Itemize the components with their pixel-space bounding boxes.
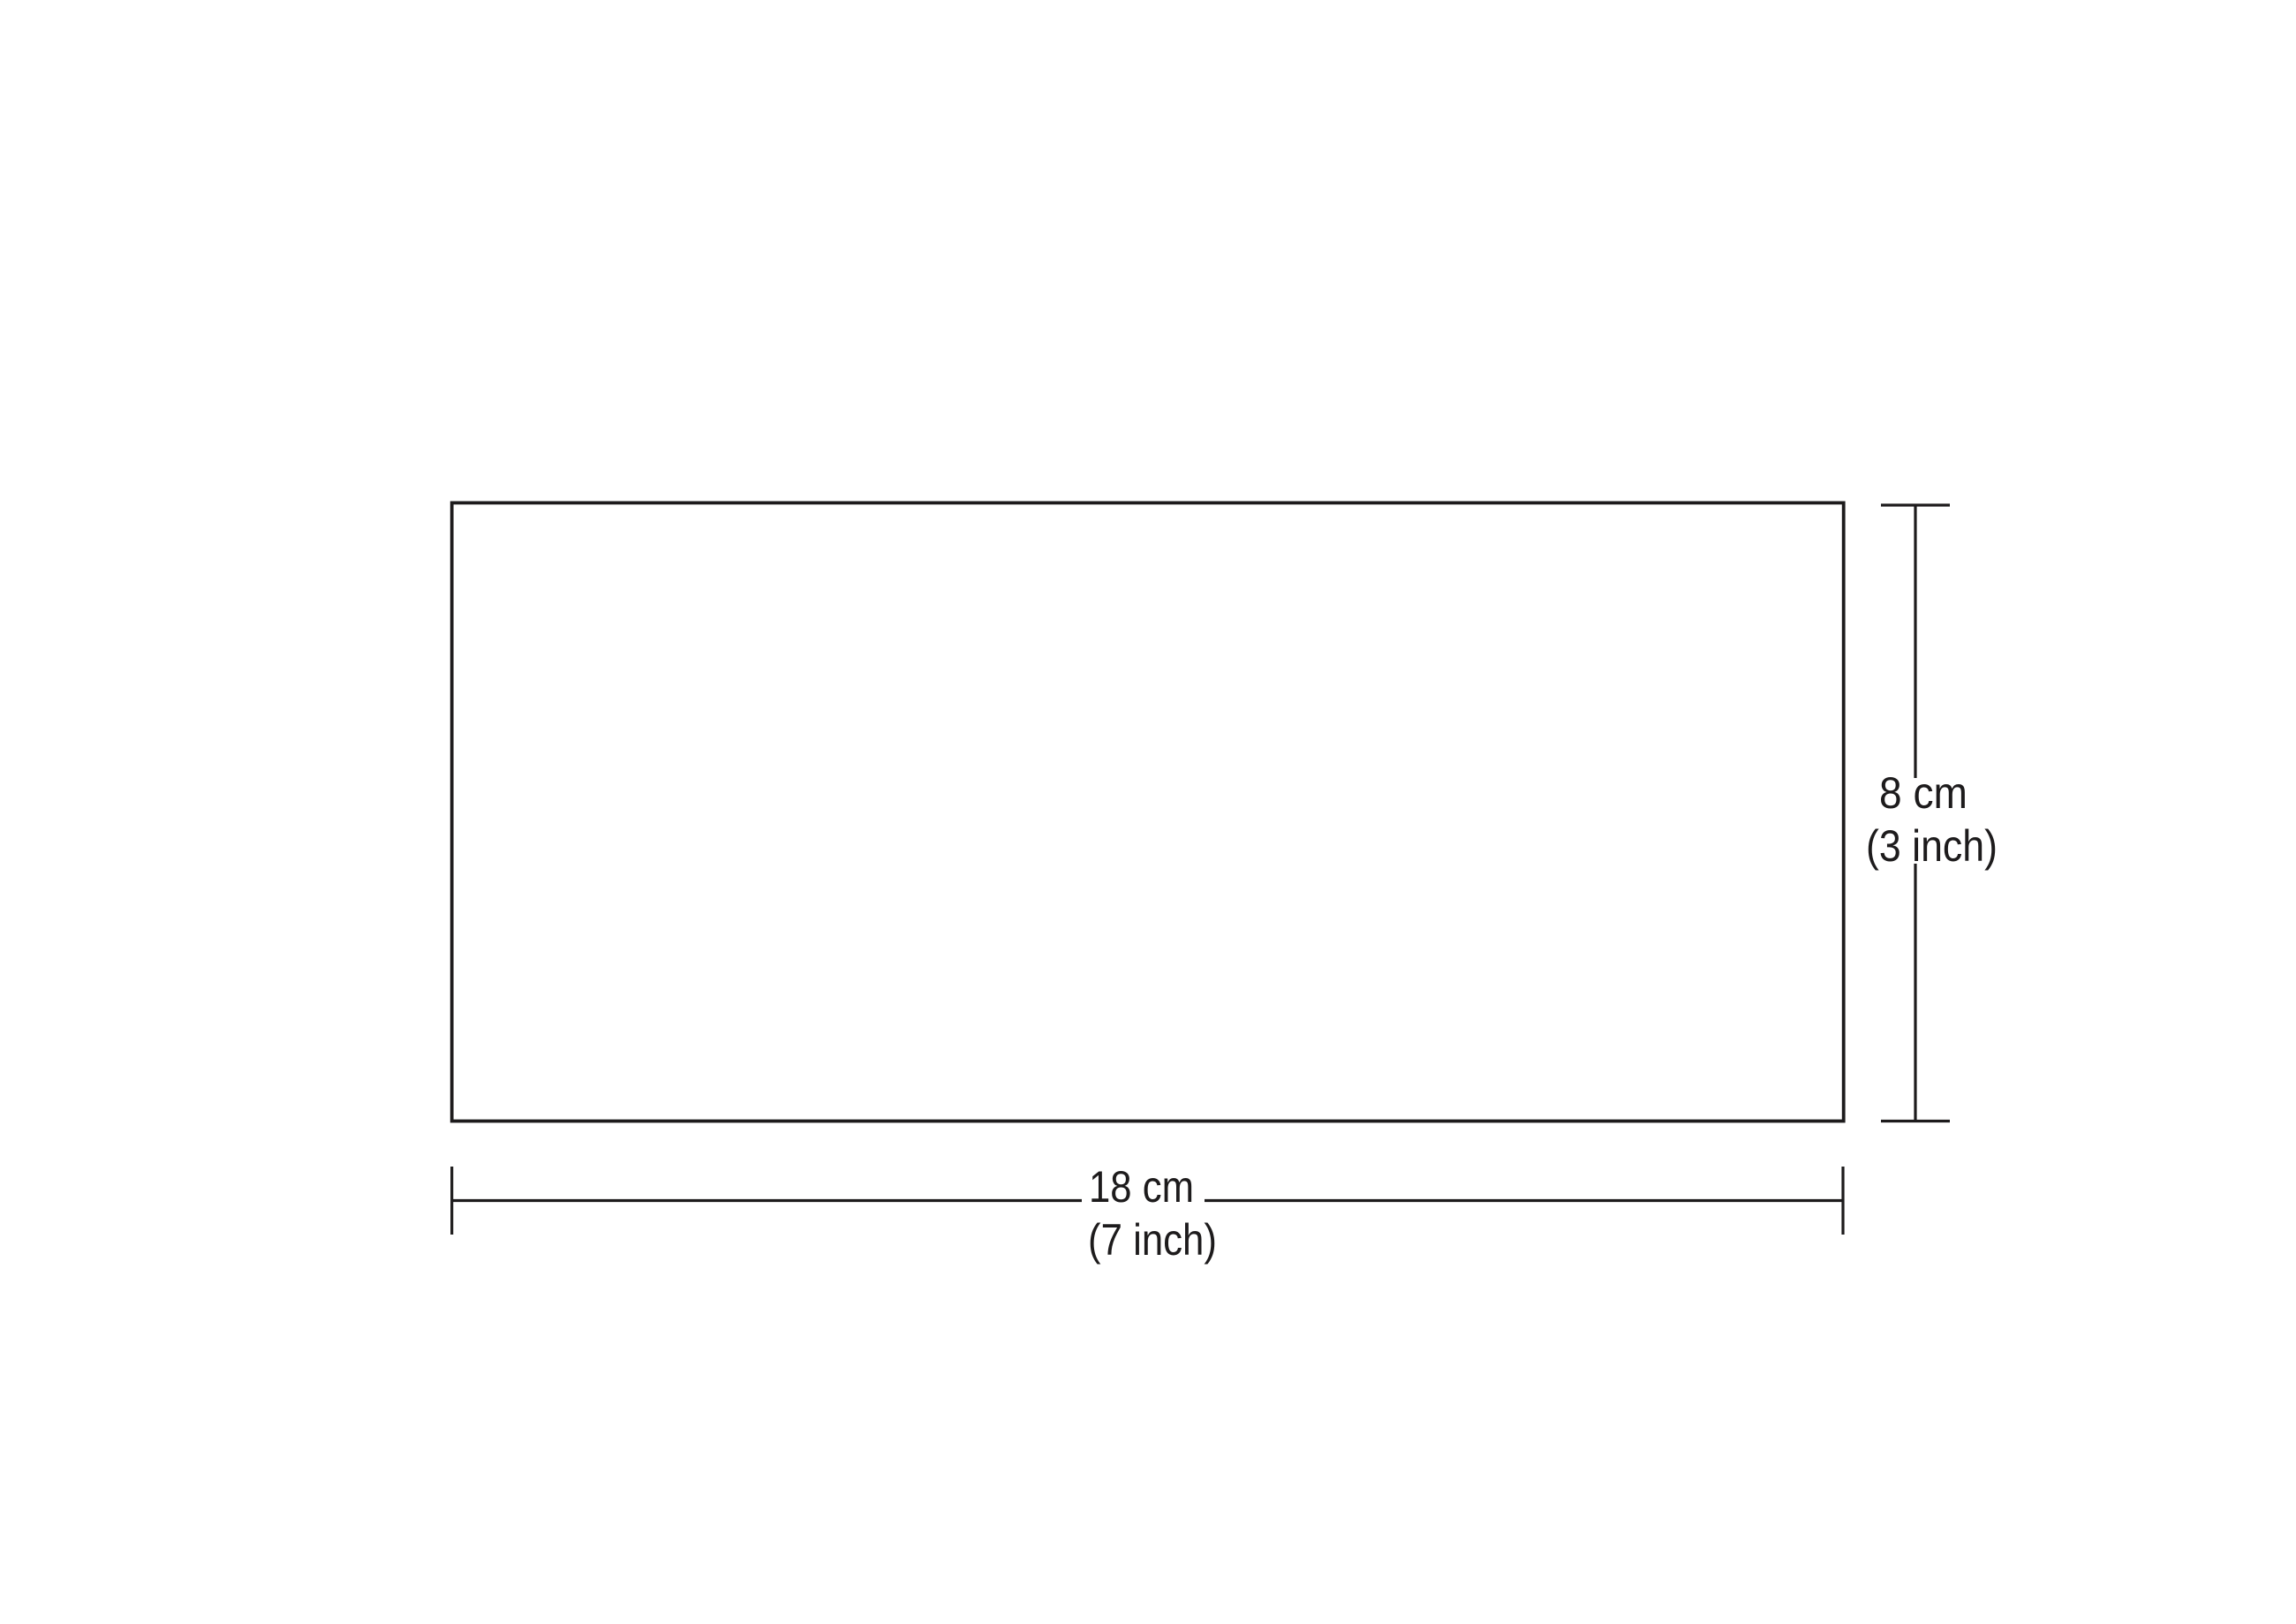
svg-text:18 cm: 18 cm <box>1089 1162 1194 1212</box>
svg-text:8 cm: 8 cm <box>1879 768 1967 818</box>
svg-text:(3 inch): (3 inch) <box>1866 821 1998 871</box>
svg-text:(7 inch): (7 inch) <box>1088 1215 1217 1265</box>
